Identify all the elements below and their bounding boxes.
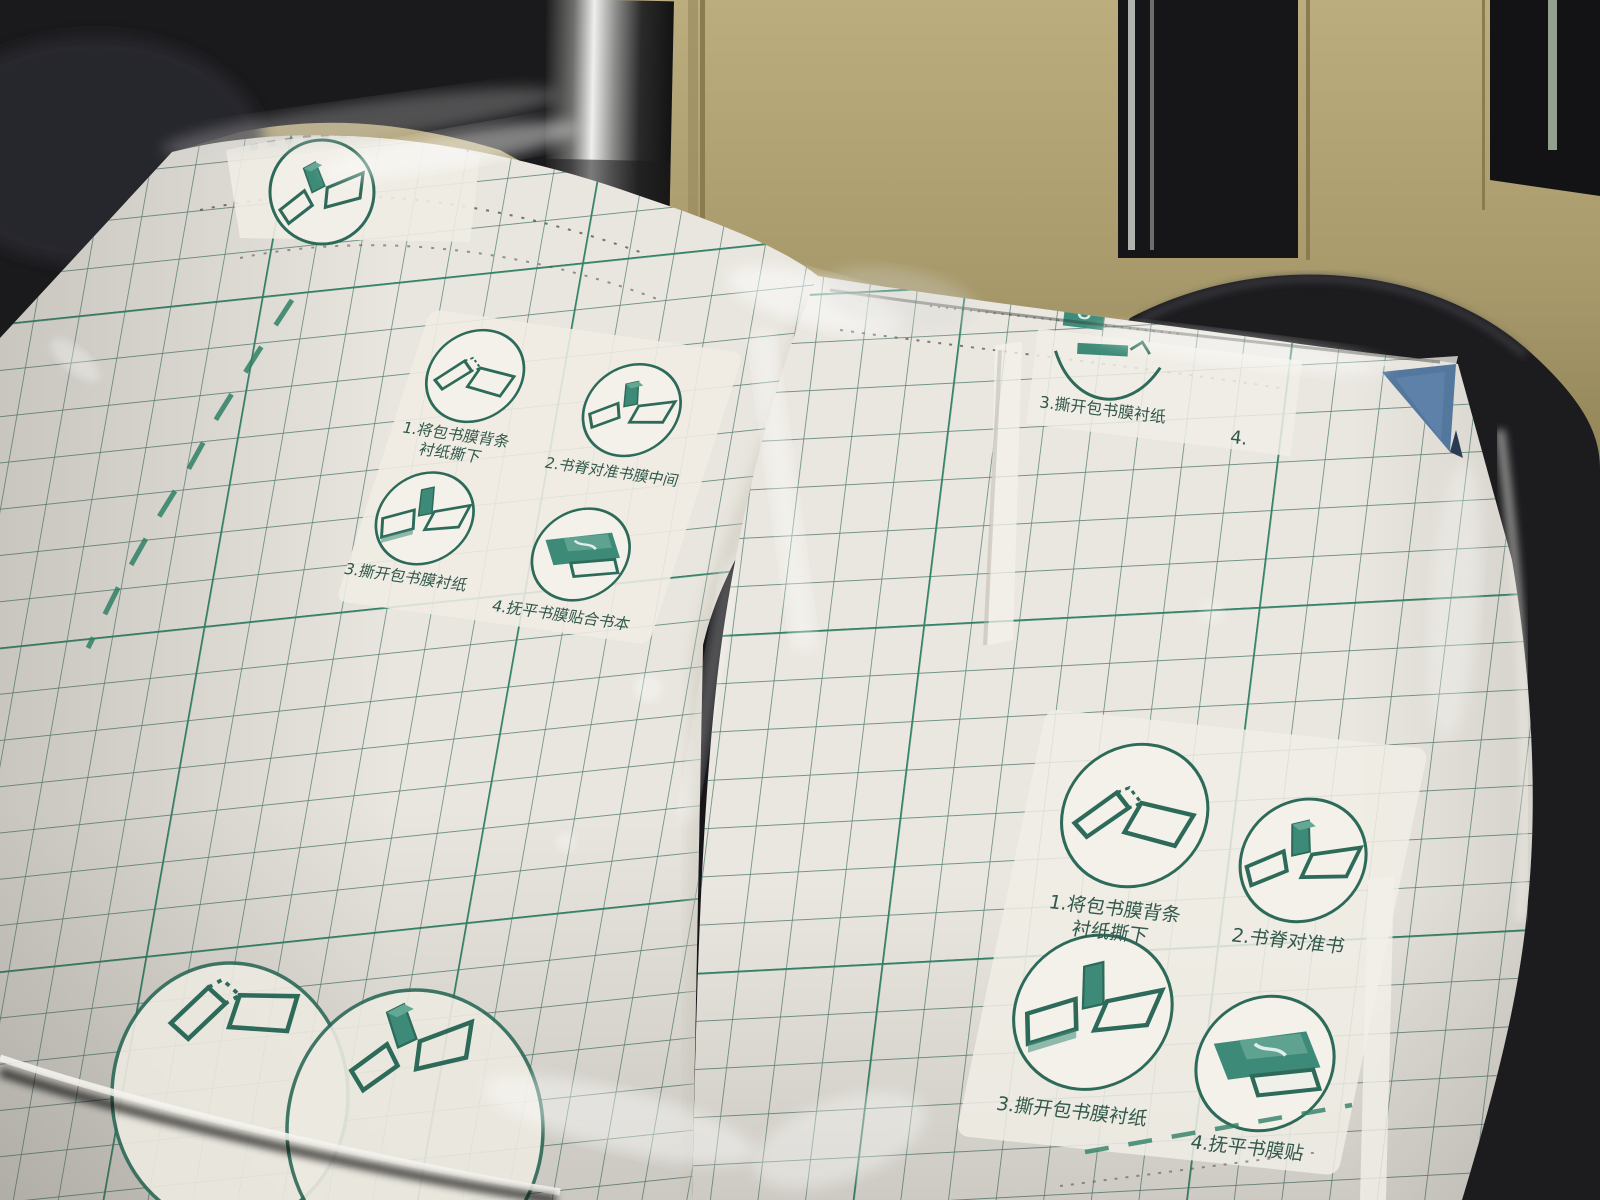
light-sliver <box>1548 0 1557 150</box>
film-sparkle <box>634 674 662 702</box>
top-step4-label: 4. <box>1229 427 1249 450</box>
chrome-pole-right <box>1118 0 1298 258</box>
photo-scene: 1.将包书膜背条 衬纸撕下 2.书脊对准书膜中间 3.撕开包书膜衬纸 4.抚平书… <box>0 0 1600 1200</box>
wood-panel-seam <box>1482 0 1485 210</box>
film-sparkle <box>556 832 576 852</box>
dark-corner-top-right <box>1490 0 1600 196</box>
scene-canvas: 1.将包书膜背条 衬纸撕下 2.书脊对准书膜中间 3.撕开包书膜衬纸 4.抚平书… <box>0 0 1600 1200</box>
wood-panel-seam <box>1306 0 1310 260</box>
film-sparkle <box>1200 600 1224 624</box>
